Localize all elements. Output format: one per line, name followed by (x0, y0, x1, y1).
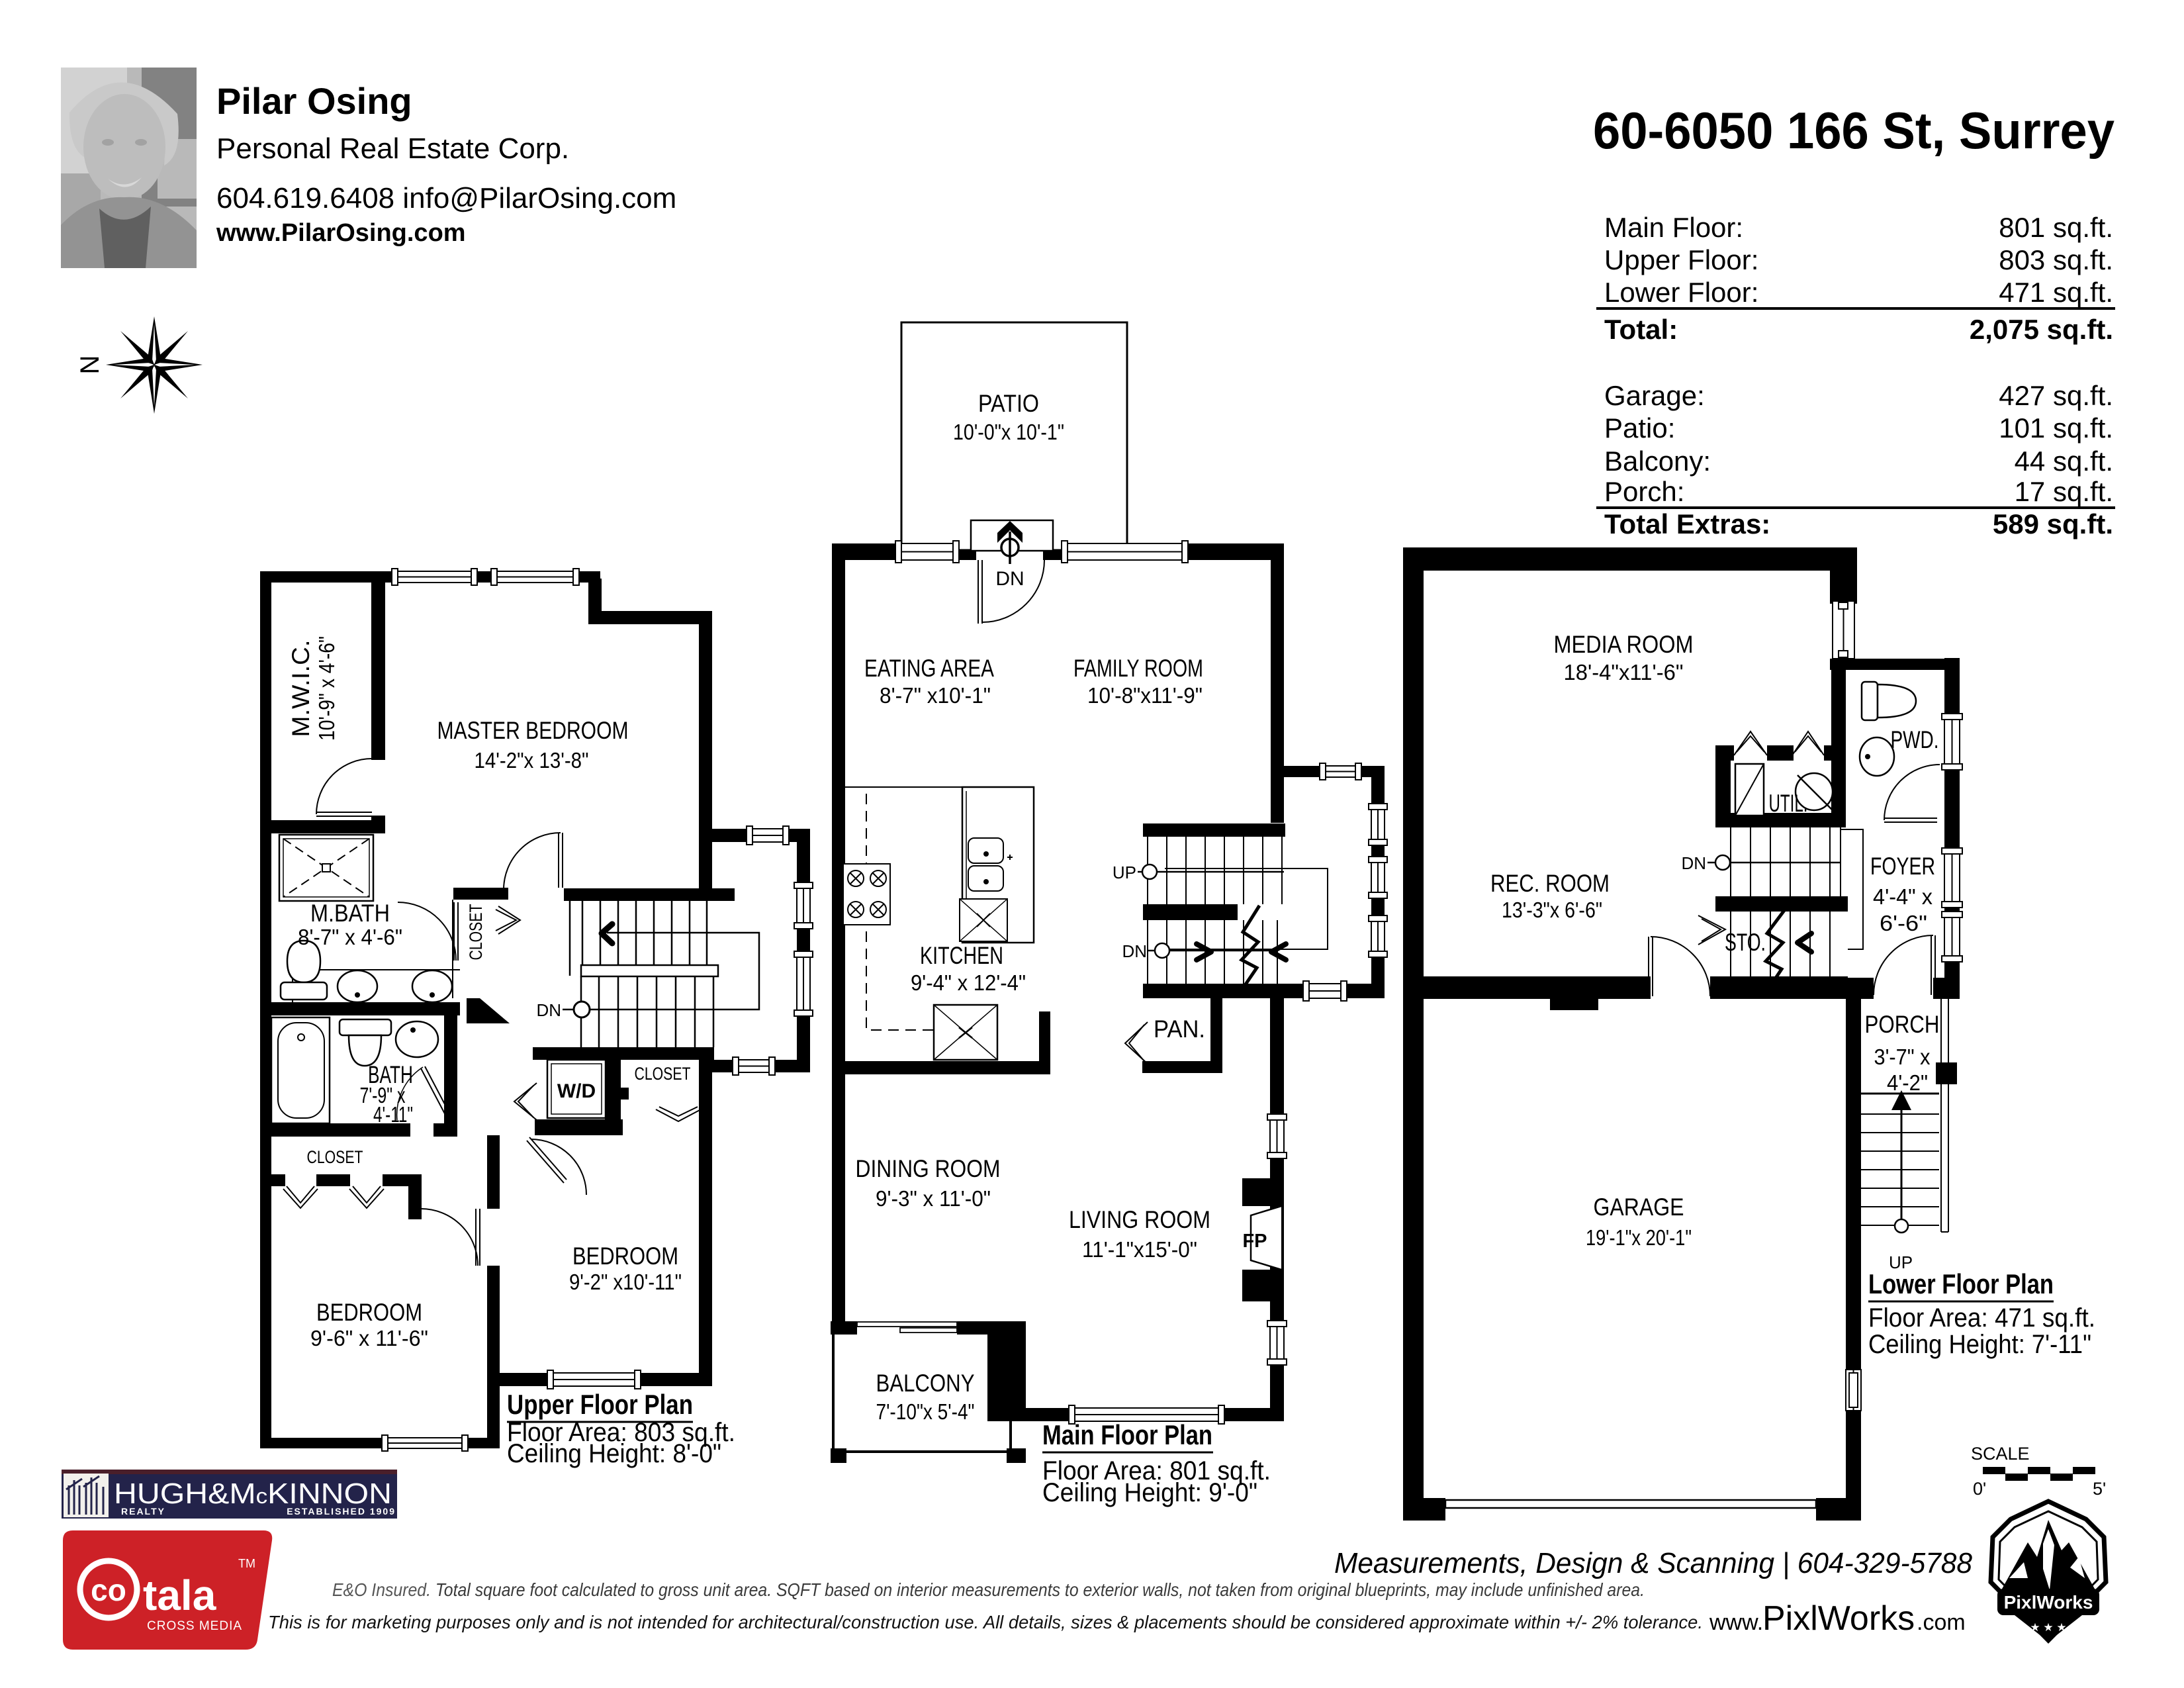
svg-text:UTIL.: UTIL. (1769, 790, 1808, 817)
svg-text:PWD.: PWD. (1891, 726, 1939, 753)
svg-text:4'-4" x: 4'-4" x (1873, 884, 1933, 909)
svg-text:CLOSET: CLOSET (635, 1064, 691, 1084)
svg-text:3'-7" x: 3'-7" x (1874, 1045, 1931, 1069)
svg-text:Total:: Total: (1604, 314, 1678, 345)
svg-text:CLOSET: CLOSET (307, 1147, 363, 1167)
svg-text:PixlWorks: PixlWorks (2004, 1592, 2093, 1613)
svg-text:5': 5' (2093, 1479, 2106, 1499)
svg-text:BALCONY: BALCONY (876, 1370, 975, 1397)
svg-text:www.PilarOsing.com: www.PilarOsing.com (216, 219, 466, 247)
svg-text:TM: TM (238, 1557, 255, 1570)
svg-text:Main Floor Plan: Main Floor Plan (1042, 1419, 1212, 1450)
svg-text:801 sq.ft.: 801 sq.ft. (1999, 212, 2113, 243)
svg-text:UP: UP (1113, 863, 1136, 882)
svg-text:60-6050 166 St, Surrey: 60-6050 166 St, Surrey (1593, 101, 2115, 160)
svg-text:N: N (75, 355, 105, 375)
svg-text:6'-6": 6'-6" (1880, 911, 1927, 935)
svg-text:W/D: W/D (557, 1080, 596, 1102)
svg-text:Ceiling Height: 9'-0": Ceiling Height: 9'-0" (1042, 1478, 1257, 1507)
svg-text:9'-6" x 11'-6": 9'-6" x 11'-6" (310, 1326, 428, 1350)
svg-text:8'-7" x 4'-6": 8'-7" x 4'-6" (298, 925, 402, 949)
svg-text:10'-8"x11'-9": 10'-8"x11'-9" (1087, 683, 1203, 708)
svg-text:427 sq.ft.: 427 sq.ft. (1999, 380, 2113, 411)
svg-text:tala: tala (143, 1571, 216, 1619)
svg-text:This is for marketing purposes: This is for marketing purposes only and … (268, 1612, 1703, 1632)
svg-text:LIVING ROOM: LIVING ROOM (1069, 1206, 1210, 1233)
svg-text:11'-1"x15'-0": 11'-1"x15'-0" (1082, 1237, 1197, 1262)
svg-text:www.: www. (1709, 1610, 1763, 1635)
svg-text:REC. ROOM: REC. ROOM (1490, 870, 1610, 897)
svg-text:471 sq.ft.: 471 sq.ft. (1999, 277, 2113, 308)
svg-text:18'-4"x11'-6": 18'-4"x11'-6" (1564, 660, 1684, 684)
svg-text:MASTER BEDROOM: MASTER BEDROOM (437, 717, 629, 744)
svg-text:Porch:: Porch: (1604, 476, 1684, 507)
svg-text:.com: .com (1917, 1610, 1966, 1635)
svg-text:PORCH: PORCH (1865, 1011, 1940, 1038)
svg-text:Upper Floor Plan: Upper Floor Plan (507, 1389, 693, 1420)
svg-text:13'-3"x 6'-6": 13'-3"x 6'-6" (1502, 898, 1602, 922)
svg-text:M.W.I.C.: M.W.I.C. (287, 640, 314, 737)
svg-text:Pilar Osing: Pilar Osing (216, 80, 412, 122)
svg-text:co: co (91, 1573, 126, 1607)
svg-text:Patio:: Patio: (1604, 412, 1675, 444)
svg-text:BEDROOM: BEDROOM (572, 1243, 678, 1270)
svg-text:GARAGE: GARAGE (1594, 1194, 1684, 1221)
svg-text:4'-2": 4'-2" (1887, 1070, 1928, 1095)
svg-text:KITCHEN: KITCHEN (920, 942, 1003, 969)
svg-text:Ceiling Height: 7'-11": Ceiling Height: 7'-11" (1868, 1330, 2091, 1359)
svg-text:ESTABLISHED 1909: ESTABLISHED 1909 (287, 1506, 396, 1517)
svg-text:PATIO: PATIO (978, 390, 1039, 417)
svg-text:DN: DN (1681, 853, 1706, 873)
svg-text:Garage:: Garage: (1604, 380, 1705, 411)
svg-text:17 sq.ft.: 17 sq.ft. (2015, 476, 2113, 507)
svg-text:SCALE: SCALE (1971, 1444, 2030, 1464)
svg-text:FP: FP (1242, 1231, 1267, 1252)
svg-text:DN: DN (536, 1000, 561, 1020)
svg-text:PixlWorks: PixlWorks (1762, 1599, 1915, 1638)
svg-text:10'-9" x 4'-6": 10'-9" x 4'-6" (314, 636, 339, 741)
svg-text:9'-4" x 12'-4": 9'-4" x 12'-4" (911, 970, 1026, 995)
svg-text:10'-0"x 10'-1": 10'-0"x 10'-1" (953, 420, 1064, 444)
svg-text:Ceiling Height: 8'-0": Ceiling Height: 8'-0" (507, 1439, 721, 1468)
svg-text:Floor Area: 471 sq.ft.: Floor Area: 471 sq.ft. (1868, 1303, 2095, 1333)
svg-text:604.619.6408 info@PilarOsing.: 604.619.6408 info@PilarOsing.com (216, 182, 676, 214)
svg-text:BEDROOM: BEDROOM (316, 1299, 422, 1326)
svg-text:44 sq.ft.: 44 sq.ft. (2015, 445, 2113, 477)
svg-text:Measurements, Design & Scannin: Measurements, Design & Scanning | 604-32… (1334, 1547, 1972, 1579)
svg-text:Lower Floor:: Lower Floor: (1604, 277, 1758, 308)
svg-text:CLOSET: CLOSET (466, 904, 486, 961)
svg-text:DINING ROOM: DINING ROOM (856, 1155, 1001, 1182)
svg-text:★ ★ ★: ★ ★ ★ (2030, 1621, 2066, 1634)
svg-text:19'-1"x 20'-1": 19'-1"x 20'-1" (1586, 1225, 1692, 1250)
svg-text:0': 0' (1973, 1479, 1986, 1499)
svg-text:DN: DN (995, 568, 1024, 590)
svg-text:FAMILY ROOM: FAMILY ROOM (1073, 655, 1203, 682)
svg-text:9'-3" x 11'-0": 9'-3" x 11'-0" (876, 1186, 991, 1211)
svg-text:DN: DN (1122, 941, 1147, 961)
svg-text:9'-2" x10'-11": 9'-2" x10'-11" (569, 1270, 682, 1294)
svg-text:14'-2"x 13'-8": 14'-2"x 13'-8" (475, 748, 589, 773)
svg-text:E&O Insured. Total square foo: E&O Insured. Total square foot calculate… (332, 1579, 1645, 1600)
svg-text:M.BATH: M.BATH (310, 900, 390, 927)
svg-text:589 sq.ft.: 589 sq.ft. (1993, 508, 2113, 539)
svg-text:REALTY: REALTY (121, 1506, 165, 1517)
svg-text:4'-11": 4'-11" (373, 1102, 413, 1127)
svg-text:HUGH&McKINNON: HUGH&McKINNON (114, 1477, 392, 1510)
svg-text:2,075 sq.ft.: 2,075 sq.ft. (1970, 314, 2113, 345)
svg-text:Personal Real Estate Corp.: Personal Real Estate Corp. (216, 132, 569, 165)
svg-text:7'-10"x 5'-4": 7'-10"x 5'-4" (876, 1399, 975, 1424)
svg-text:Main Floor:: Main Floor: (1604, 212, 1743, 243)
svg-text:PAN.: PAN. (1154, 1015, 1205, 1043)
svg-text:EATING AREA: EATING AREA (864, 655, 994, 682)
svg-text:Lower Floor Plan: Lower Floor Plan (1868, 1268, 2054, 1299)
svg-text:Upper Floor:: Upper Floor: (1604, 244, 1758, 275)
svg-text:8'-7" x10'-1": 8'-7" x10'-1" (880, 683, 991, 708)
svg-text:MEDIA ROOM: MEDIA ROOM (1554, 631, 1694, 658)
svg-text:Total Extras:: Total Extras: (1604, 508, 1770, 539)
svg-text:101 sq.ft.: 101 sq.ft. (1999, 412, 2113, 444)
svg-text:Balcony:: Balcony: (1604, 445, 1711, 477)
svg-text:FOYER: FOYER (1870, 853, 1935, 880)
svg-text:STO.: STO. (1725, 929, 1766, 956)
svg-text:803 sq.ft.: 803 sq.ft. (1999, 244, 2113, 275)
svg-text:CROSS MEDIA: CROSS MEDIA (147, 1619, 242, 1633)
